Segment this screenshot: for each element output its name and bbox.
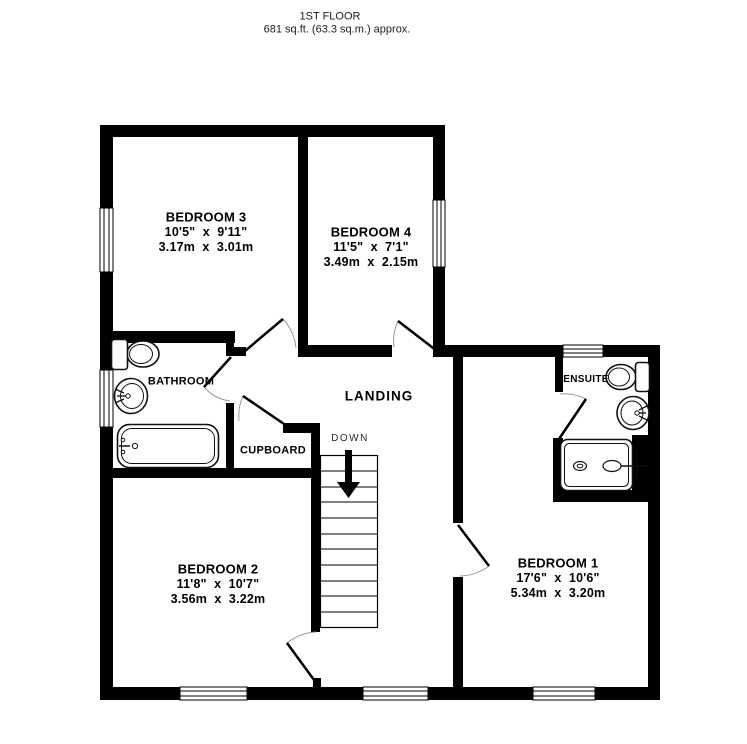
ensuite-sink-icon [617, 397, 649, 430]
door-bedroom2 [287, 632, 317, 684]
floorplan-drawing [0, 0, 747, 744]
window [180, 687, 247, 700]
door-bedroom1 [458, 525, 489, 576]
bedroom3-label: BEDROOM 3 [166, 211, 247, 224]
wall [283, 423, 320, 433]
landing-label: LANDING [345, 389, 414, 403]
window [100, 208, 113, 272]
bathtub-icon [118, 425, 219, 468]
bedroom1-metric: 5.34m x 3.20m [511, 587, 606, 600]
bedroom1-label: BEDROOM 1 [518, 557, 599, 570]
wall [632, 435, 648, 490]
stairs [321, 450, 378, 628]
door-ensuite [559, 394, 586, 439]
ensuite-label: ENSUITE [563, 375, 608, 385]
door-bedroom4 [394, 321, 437, 351]
window [363, 687, 428, 700]
bedroom2-label: BEDROOM 2 [178, 563, 259, 576]
bedroom3-imperial: 10'5" x 9'11" [165, 226, 248, 239]
bedroom2-metric: 3.56m x 3.22m [171, 593, 266, 606]
bedroom2-imperial: 11'8" x 10'7" [177, 578, 260, 591]
wall [648, 345, 660, 700]
ensuite-toilet-icon [606, 363, 650, 392]
window [100, 370, 113, 427]
wall [453, 577, 463, 687]
wall [100, 125, 445, 137]
wall [226, 403, 234, 472]
door-bedroom3 [245, 319, 296, 351]
wall [453, 357, 463, 523]
wall [555, 357, 563, 392]
bathroom-toilet-icon [112, 340, 160, 370]
window [433, 200, 445, 267]
bedroom4-label: BEDROOM 4 [331, 226, 412, 239]
door-cupboard [239, 396, 284, 424]
floorplan-page: 1ST FLOOR 681 sq.ft. (63.3 sq.m.) approx… [0, 0, 747, 744]
bedroom3-metric: 3.17m x 3.01m [159, 241, 254, 254]
bedroom1-imperial: 17'6" x 10'6" [516, 572, 599, 585]
window [533, 687, 595, 700]
bathroom-label: BATHROOM [148, 377, 214, 388]
wall [553, 490, 660, 502]
window [563, 345, 603, 357]
wall [298, 345, 392, 357]
wall [433, 345, 660, 357]
wall [100, 468, 320, 478]
stairs-down-label: DOWN [331, 434, 369, 444]
wall [113, 331, 235, 343]
bathroom-sink-icon [115, 379, 148, 414]
wall [237, 347, 246, 356]
wall [311, 433, 320, 632]
doors [204, 319, 586, 684]
wall [298, 137, 308, 355]
bedroom4-imperial: 11'5" x 7'1" [333, 241, 409, 254]
cupboard-label: CUPBOARD [240, 446, 306, 457]
bedroom4-metric: 3.49m x 2.15m [324, 256, 419, 269]
